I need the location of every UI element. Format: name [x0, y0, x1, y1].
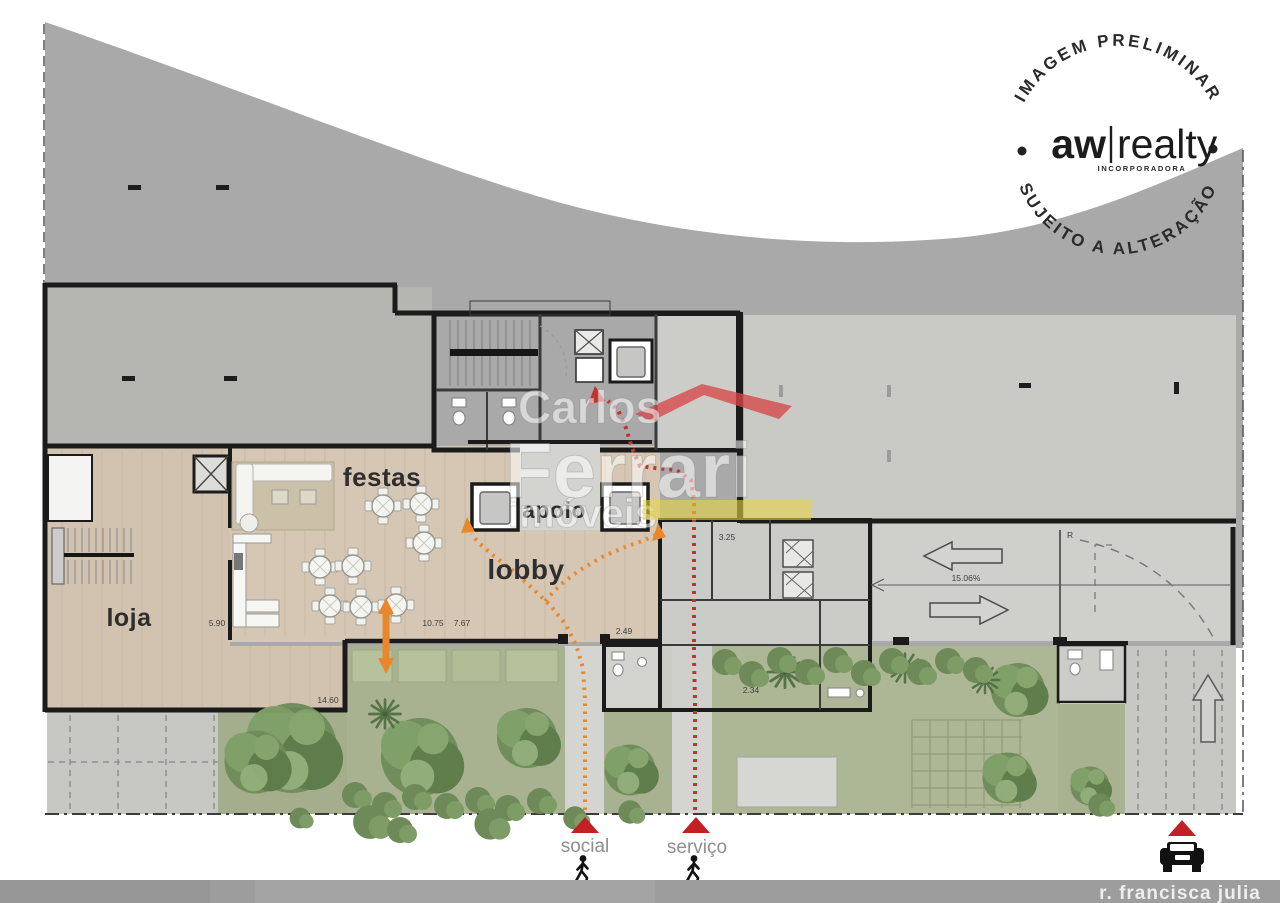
dim-lobby-w1: 10.75: [422, 618, 444, 628]
stamp-dot-left: [1018, 147, 1027, 156]
floorplan-svg: loja festas apoio lobby 5.90 10.75 7.67 …: [0, 0, 1280, 903]
label-loja: loja: [106, 604, 152, 632]
brand-aw: aw: [1051, 121, 1106, 167]
label-servico: serviço: [667, 837, 727, 858]
dim-festas-width: 5.90: [209, 618, 226, 628]
floorplan-image: loja festas apoio lobby 5.90 10.75 7.67 …: [0, 0, 1280, 903]
watermark-highlight: [643, 500, 811, 520]
label-social: social: [561, 836, 610, 857]
brand-subtitle: INCORPORADORA: [1098, 164, 1187, 173]
label-festas: festas: [343, 462, 421, 492]
watermark-line3: imóveis: [508, 492, 657, 536]
street-name: r. francisca julia: [1099, 883, 1261, 903]
dim-garden-width: 14.60: [317, 695, 339, 705]
label-lobby: lobby: [487, 554, 564, 585]
dim-r-mark: R: [1067, 530, 1073, 540]
dim-ramp-slope: 15.06%: [952, 573, 981, 583]
dim-room-w: 3.25: [719, 532, 736, 542]
dim-lobby-w2: 7.67: [454, 618, 471, 628]
street-bar: r. francisca julia: [0, 880, 1280, 903]
dim-room-d: 2.34: [743, 685, 760, 695]
brand-realty: realty: [1117, 121, 1218, 167]
dim-wc-width: 2.49: [616, 626, 633, 636]
